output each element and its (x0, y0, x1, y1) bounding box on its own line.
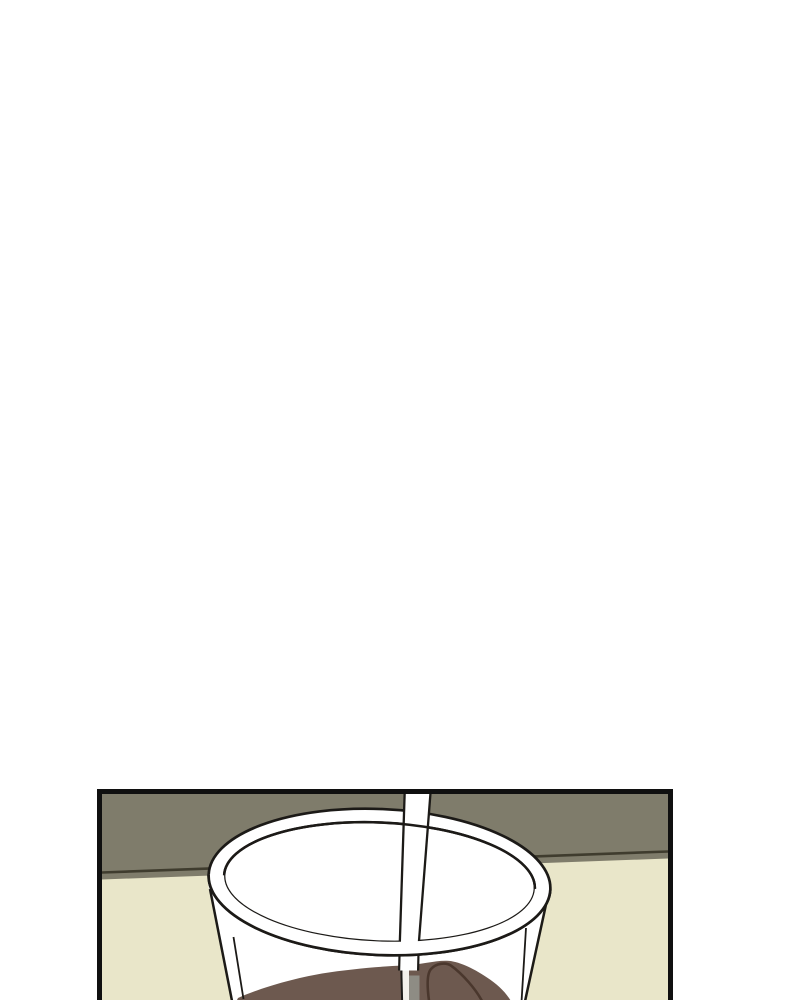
straw-submerged-outline (401, 969, 402, 1000)
comic-page (0, 0, 800, 1000)
straw-submerged (409, 976, 420, 1000)
comic-panel-artwork (0, 0, 800, 1000)
straw-submerged-highlight (403, 969, 410, 1000)
